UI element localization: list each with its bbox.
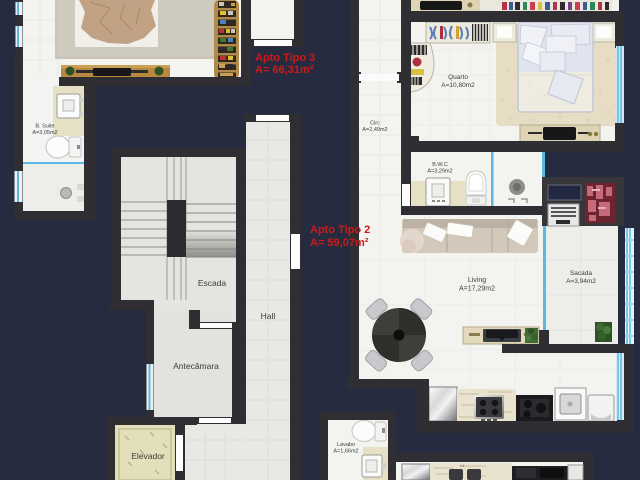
svg-text:Apto Tipo 2: Apto Tipo 2 bbox=[310, 224, 370, 236]
svg-text:A=3,29m2: A=3,29m2 bbox=[427, 169, 452, 175]
svg-text:Antecâmara: Antecâmara bbox=[173, 361, 219, 371]
svg-text:A=1,66m2: A=1,66m2 bbox=[333, 449, 358, 455]
svg-text:A=2,49m2: A=2,49m2 bbox=[362, 127, 387, 133]
svg-text:Living: Living bbox=[468, 277, 486, 284]
svg-text:B.W.C: B.W.C bbox=[432, 162, 448, 168]
svg-text:A= 66,31m²: A= 66,31m² bbox=[255, 64, 314, 76]
svg-text:A=3,94m2: A=3,94m2 bbox=[566, 278, 596, 285]
svg-text:Circ: Circ bbox=[370, 121, 380, 127]
svg-text:Elevador: Elevador bbox=[131, 451, 165, 461]
svg-text:B. Suite: B. Suite bbox=[35, 124, 54, 130]
svg-text:Sacada: Sacada bbox=[570, 270, 592, 277]
svg-text:Escada: Escada bbox=[198, 278, 227, 288]
svg-text:A=3,05m2: A=3,05m2 bbox=[32, 130, 57, 136]
svg-text:A=10,80m2: A=10,80m2 bbox=[441, 82, 475, 89]
svg-text:A= 59,07m²: A= 59,07m² bbox=[310, 237, 369, 249]
svg-text:Apto Tipo 3: Apto Tipo 3 bbox=[255, 52, 315, 64]
svg-text:Quarto: Quarto bbox=[448, 74, 468, 81]
svg-text:Lavabo: Lavabo bbox=[337, 442, 355, 448]
svg-text:I=I: I=I bbox=[460, 463, 465, 468]
svg-text:Hall: Hall bbox=[261, 311, 276, 321]
svg-text:A=17,29m2: A=17,29m2 bbox=[459, 286, 495, 293]
